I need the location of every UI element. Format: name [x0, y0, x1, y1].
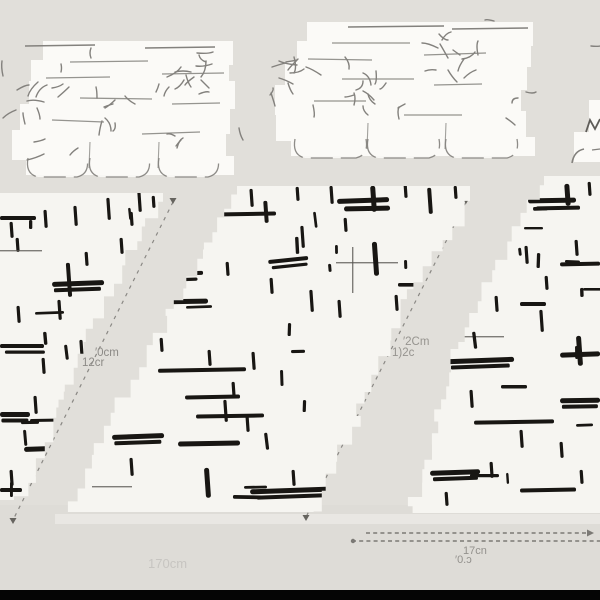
svg-text:170cm: 170cm [148, 556, 187, 571]
svg-text:12cr: 12cr [82, 357, 105, 369]
svg-text:′0.ɔ: ′0.ɔ [455, 554, 472, 566]
svg-text:1)2c: 1)2c [392, 347, 415, 359]
